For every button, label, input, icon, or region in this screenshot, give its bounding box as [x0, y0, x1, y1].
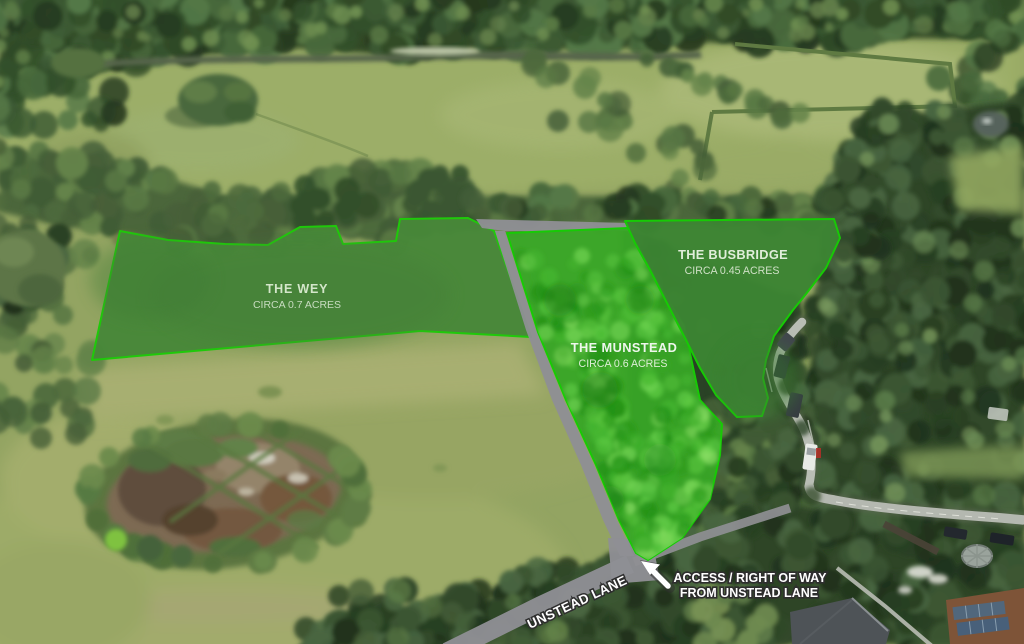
svg-text:THE WEY: THE WEY	[266, 282, 329, 296]
svg-text:CIRCA 0.6 ACRES: CIRCA 0.6 ACRES	[579, 358, 668, 370]
svg-text:FROM UNSTEAD LANE: FROM UNSTEAD LANE	[680, 586, 818, 600]
svg-text:THE BUSBRIDGE: THE BUSBRIDGE	[678, 247, 788, 262]
svg-text:CIRCA 0.7 ACRES: CIRCA 0.7 ACRES	[253, 299, 341, 311]
svg-text:ACCESS / RIGHT OF WAY: ACCESS / RIGHT OF WAY	[673, 571, 827, 585]
svg-text:CIRCA 0.45 ACRES: CIRCA 0.45 ACRES	[685, 265, 780, 277]
svg-text:THE MUNSTEAD: THE MUNSTEAD	[571, 340, 677, 355]
